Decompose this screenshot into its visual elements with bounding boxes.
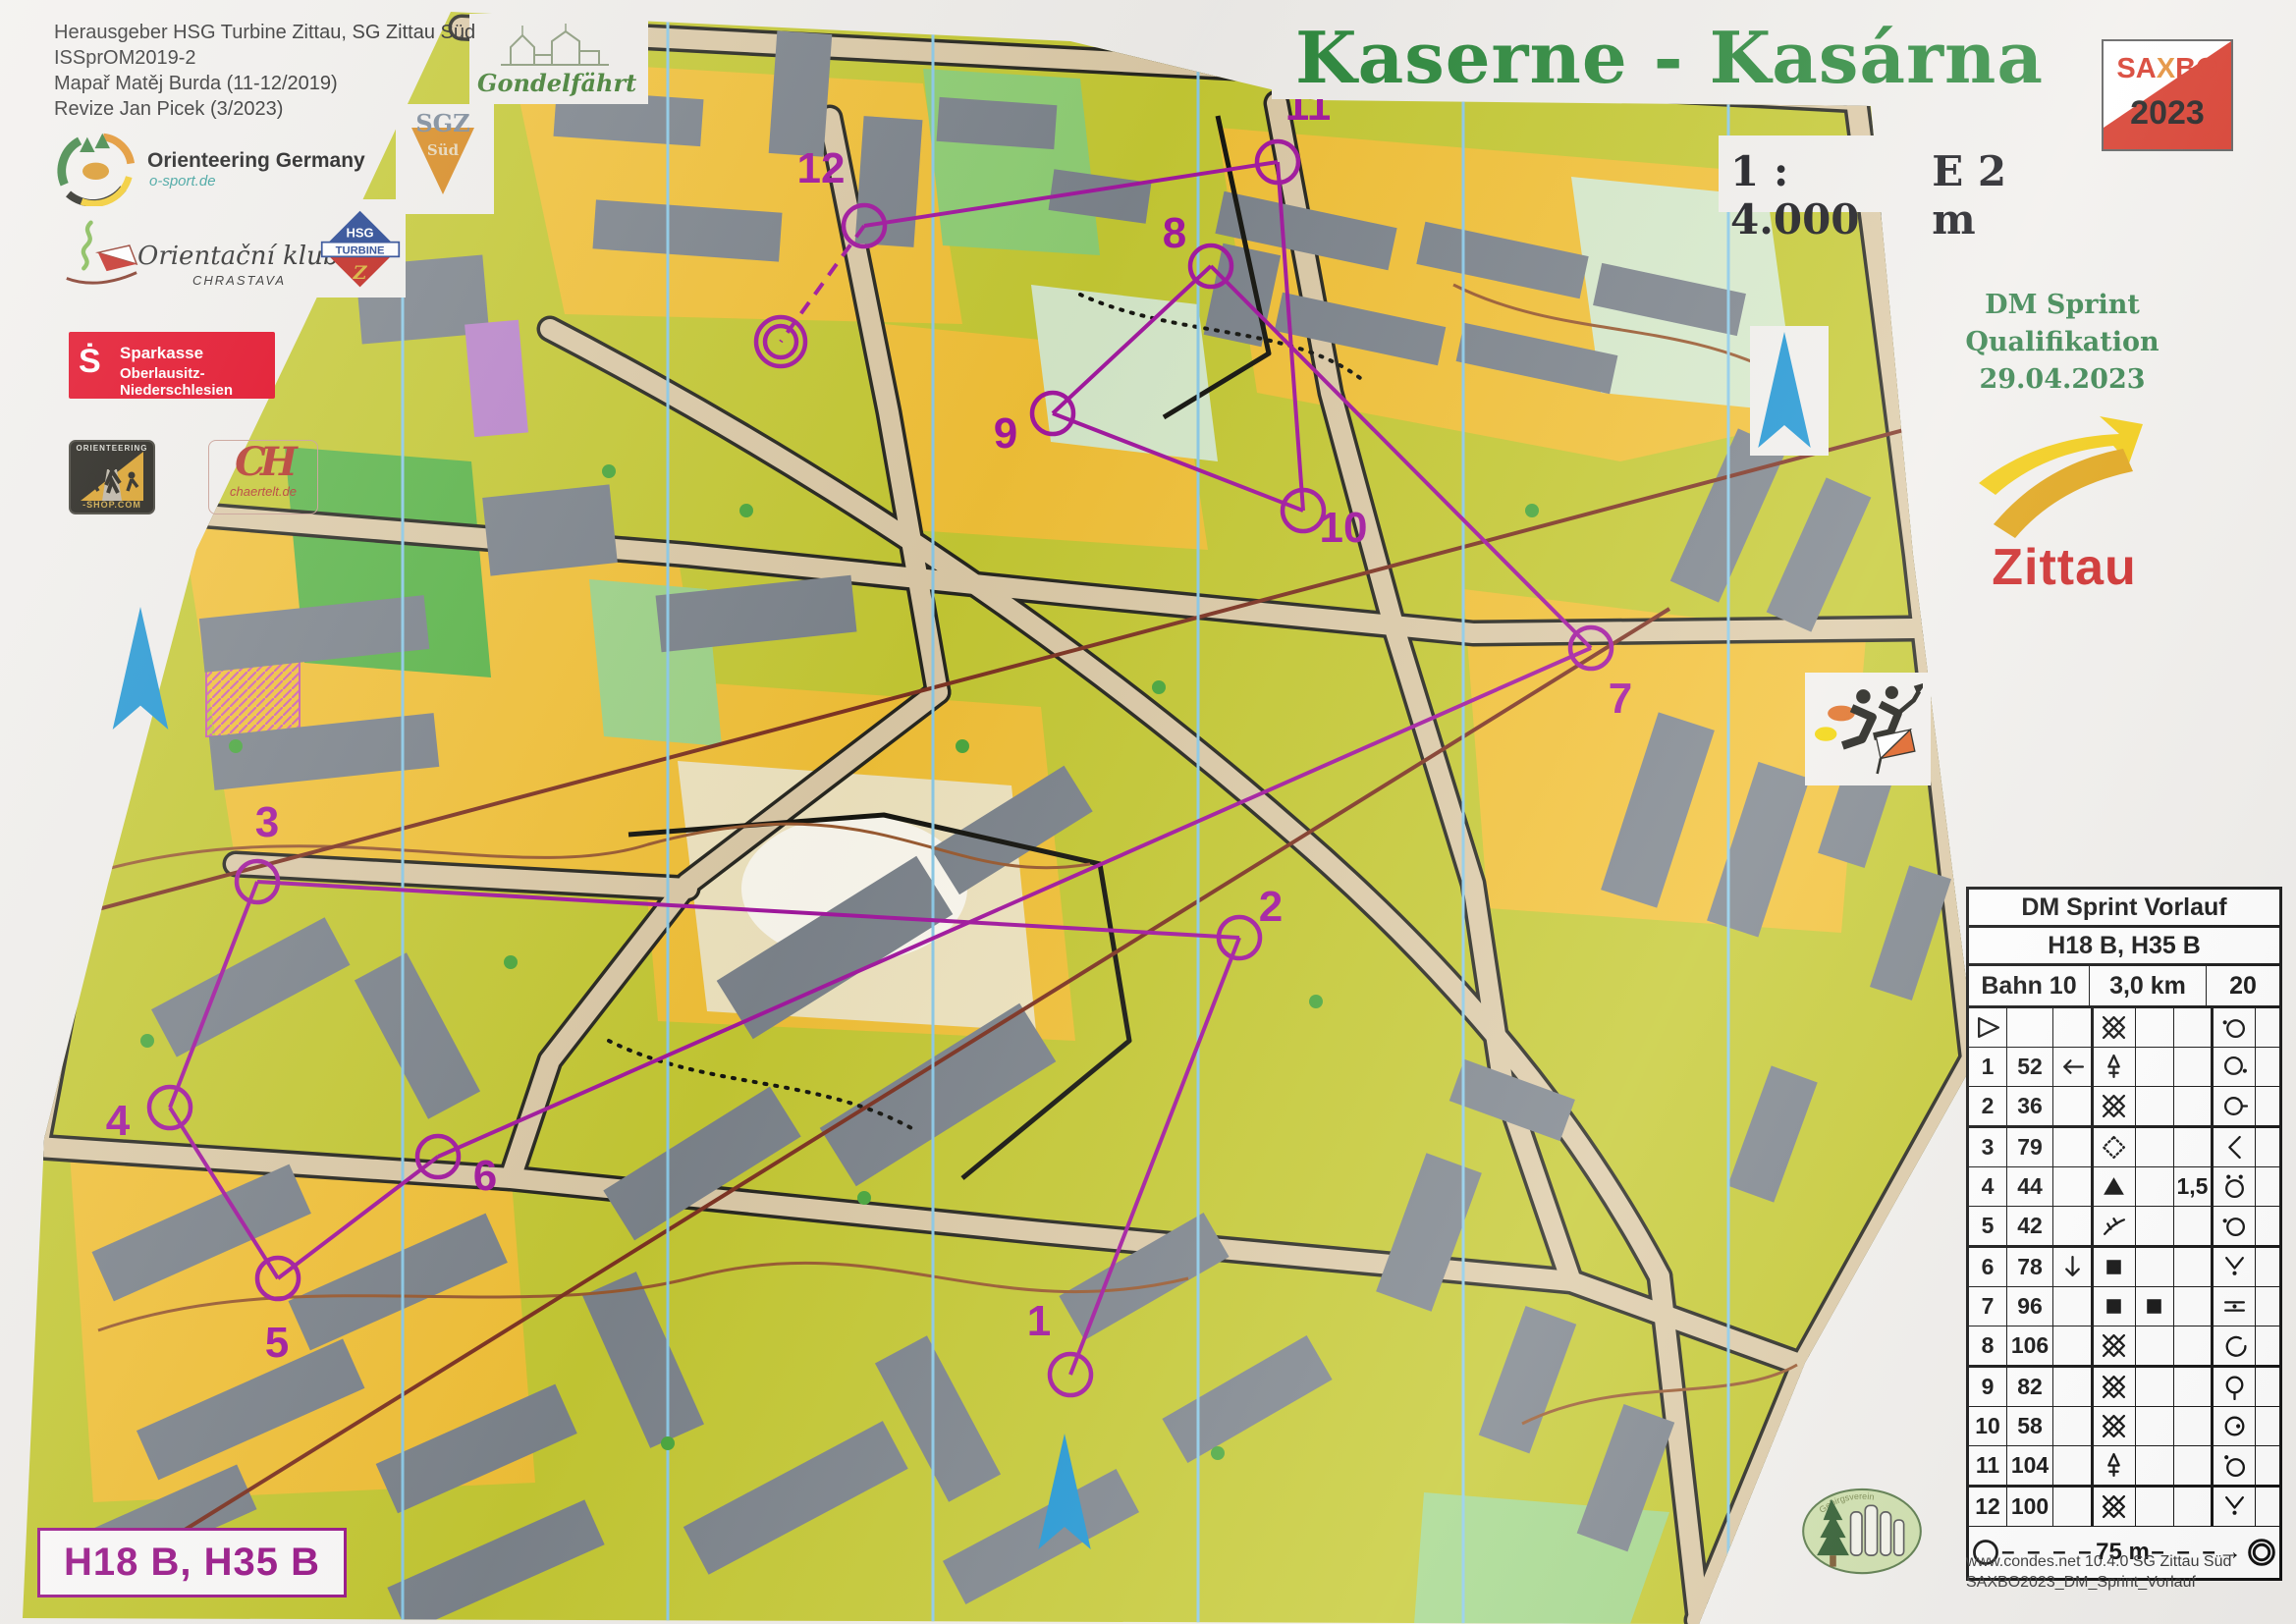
imprint-line: Herausgeber HSG Turbine Zittau, SG Zitta…: [54, 20, 475, 45]
circle-bar-e-icon: .ol{fill:none;stroke:#111;stroke-width:2…: [2221, 1093, 2248, 1119]
zittau-swoosh-icon: [1974, 412, 2151, 540]
orienteering-germany-url: o-sport.de: [149, 173, 216, 189]
cd-cell: .ol{fill:none;stroke:#111;stroke-width:2…: [2091, 1368, 2136, 1406]
cd-course-length: 3,0 km: [2090, 966, 2207, 1005]
cd-cell: .ol{fill:none;stroke:#111;stroke-width:2…: [2211, 1087, 2256, 1125]
cd-cell: [2256, 1287, 2279, 1326]
control-number: 12: [797, 144, 846, 192]
cd-cell: [2136, 1488, 2174, 1526]
cd-cell: .ol{fill:none;stroke:#111;stroke-width:2…: [2136, 1287, 2174, 1326]
cd-rows: .ol{fill:none;stroke:#111;stroke-width:2…: [1969, 1008, 2279, 1527]
cd-cell: 11: [1969, 1446, 2007, 1485]
cd-control-row: 1058.ol{fill:none;stroke:#111;stroke-wid…: [1969, 1407, 2279, 1446]
cd-cell: [2136, 1248, 2174, 1286]
cd-cell: .ol{fill:none;stroke:#111;stroke-width:2…: [2211, 1326, 2256, 1365]
cd-cell: [2136, 1167, 2174, 1206]
cd-cell: [2256, 1368, 2279, 1406]
cd-control-row: 12100.ol{fill:none;stroke:#111;stroke-wi…: [1969, 1488, 2279, 1527]
cd-cell: [2174, 1446, 2213, 1485]
control-number: 3: [255, 798, 279, 846]
gondelfahrt-sketch-icon: [491, 22, 619, 69]
tree-icon: .ol{fill:none;stroke:#111;stroke-width:2…: [2101, 1452, 2127, 1479]
imprint-line: ISSprOM2019-2: [54, 45, 475, 71]
finish-circle-icon: [2246, 1537, 2277, 1568]
cd-course-climb: 20: [2207, 966, 2279, 1005]
cd-course-row: Bahn 10 3,0 km 20: [1969, 966, 2279, 1008]
cd-cell: [2136, 1407, 2174, 1445]
circle-tail-icon: .ol{fill:none;stroke:#111;stroke-width:2…: [2221, 1374, 2248, 1400]
sparkasse-line2: Oberlausitz-Niederschlesien: [120, 365, 275, 399]
cd-cell: .ol{fill:none;stroke:#111;stroke-width:2…: [2211, 1128, 2256, 1166]
scanned-orienteering-map-page: 123456789101112 Herausgeber HSG Turbine …: [0, 0, 2296, 1624]
scale-line: 1 : 4.000 E 2 m: [1730, 147, 2064, 244]
sparkasse-s-icon: Ṡ: [79, 345, 101, 378]
gondelfahrt-label: Gondelfährt: [477, 69, 636, 97]
circle-dot-w-icon: .ol{fill:none;stroke:#111;stroke-width:2…: [2221, 1213, 2248, 1239]
thicket-icon: .ol{fill:none;stroke:#111;stroke-width:2…: [2101, 1374, 2127, 1400]
cd-control-row: 678.ol{fill:none;stroke:#111;stroke-widt…: [1969, 1248, 2279, 1287]
cd-cell: [2053, 1326, 2092, 1365]
map-equidistance: E 2 m: [1932, 147, 2064, 244]
orienteering-shop-bottom-label: -SHOP.COM: [71, 500, 153, 510]
cd-cell: 58: [2007, 1407, 2053, 1445]
cd-cell: 8: [1969, 1326, 2007, 1365]
event-line: DM Sprint: [1954, 287, 2170, 324]
cd-cell: 10: [1969, 1407, 2007, 1445]
cd-cell: [2053, 1446, 2092, 1485]
canopy-building: [465, 320, 528, 437]
cd-cell: .ol{fill:none;stroke:#111;stroke-width:2…: [2211, 1167, 2256, 1206]
event-label: DM Sprint Qualifikation 29.04.2023: [1954, 287, 2170, 399]
cd-cell: [2256, 1128, 2279, 1166]
cd-cell: [2053, 1287, 2092, 1326]
bend-icon: .ol{fill:none;stroke:#111;stroke-width:2…: [2221, 1134, 2248, 1161]
cd-cell: .ol{fill:none;stroke:#111;stroke-width:2…: [2091, 1488, 2136, 1526]
ok-chrastava-sub: CHRASTAVA: [192, 273, 286, 288]
map-scale: 1 : 4.000: [1730, 147, 1932, 244]
saxbo-sa: SA: [2116, 53, 2156, 84]
building-icon: .ol{fill:none;stroke:#111;stroke-width:2…: [2101, 1293, 2127, 1320]
cd-cell: .ol{fill:none;stroke:#111;stroke-width:2…: [2091, 1008, 2136, 1047]
cd-control-row: 379.ol{fill:none;stroke:#111;stroke-widt…: [1969, 1128, 2279, 1167]
chaertelt-logo: CH chaertelt.de: [208, 440, 318, 514]
event-line: Qualifikation: [1954, 324, 2170, 361]
building-icon: .ol{fill:none;stroke:#111;stroke-width:2…: [2141, 1293, 2167, 1320]
control-number: 7: [1609, 675, 1632, 723]
thicket-icon: .ol{fill:none;stroke:#111;stroke-width:2…: [2101, 1093, 2127, 1119]
circle-dot-nw-icon: .ol{fill:none;stroke:#111;stroke-width:2…: [2221, 1452, 2248, 1479]
imprint-line: Mapař Matěj Burda (11-12/2019): [54, 71, 475, 96]
cd-cell: 36: [2007, 1087, 2053, 1125]
hsg-turbine-logo: TURBINE HSG Z: [320, 206, 401, 293]
cd-cell: 106: [2007, 1326, 2053, 1365]
cd-cell: .ol{fill:none;stroke:#111;stroke-width:2…: [2211, 1407, 2256, 1445]
cd-cell: [2256, 1167, 2279, 1206]
cd-cell: .ol{fill:none;stroke:#111;stroke-width:2…: [2091, 1326, 2136, 1365]
cd-cell: .ol{fill:none;stroke:#111;stroke-width:2…: [2211, 1248, 2256, 1286]
cd-cell: [2256, 1446, 2279, 1485]
cd-cell: [2007, 1008, 2053, 1047]
cd-cell: [2174, 1087, 2213, 1125]
cd-control-row: 542.ol{fill:none;stroke:#111;stroke-widt…: [1969, 1207, 2279, 1248]
control-number: 2: [1259, 883, 1283, 931]
event-line: 29.04.2023: [1954, 361, 2170, 399]
credit-line: www.condes.net 10.4.0 SG Zittau Süd: [1966, 1551, 2231, 1572]
zittau-label: Zittau: [1976, 538, 2153, 597]
cd-cell: [2136, 1207, 2174, 1245]
saxbo-word: SAXBO: [2104, 53, 2231, 85]
cd-cell: .ol{fill:none;stroke:#111;stroke-width:2…: [2091, 1128, 2136, 1166]
software-credit: www.condes.net 10.4.0 SG Zittau Süd SAXB…: [1966, 1551, 2231, 1593]
cd-cell: [2256, 1008, 2279, 1047]
sprint-runners-icon: [1813, 676, 1923, 776]
cd-title-row: DM Sprint Vorlauf: [1969, 890, 2279, 928]
north-arrow-icon: [1036, 1434, 1093, 1549]
north-arrow-icon: [110, 607, 171, 730]
thicket-icon: .ol{fill:none;stroke:#111;stroke-width:2…: [2101, 1332, 2127, 1359]
cd-cell: .ol{fill:none;stroke:#111;stroke-width:2…: [2091, 1407, 2136, 1445]
hsg-band-label: TURBINE: [336, 245, 385, 257]
sgz-sued-logo: SGZ Süd: [408, 110, 478, 208]
control-number: 1: [1027, 1297, 1051, 1345]
sparkasse-line1: Sparkasse: [120, 344, 203, 363]
cd-cell: 12: [1969, 1488, 2007, 1526]
cd-cell: .ol{fill:none;stroke:#111;stroke-width:2…: [2211, 1287, 2256, 1326]
cd-cell: .ol{fill:none;stroke:#111;stroke-width:2…: [1969, 1008, 2007, 1047]
boulder-icon: .ol{fill:none;stroke:#111;stroke-width:2…: [2101, 1173, 2127, 1200]
cd-cell: [2053, 1368, 2092, 1406]
arrow-left-icon: .ol{fill:none;stroke:#111;stroke-width:2…: [2059, 1054, 2086, 1080]
cd-cell: 1: [1969, 1048, 2007, 1086]
saxbo-2023-logo: SAXBO 2023: [2102, 39, 2233, 151]
cd-cell: [2053, 1207, 2092, 1245]
credit-line: SAXBO2023_DM_Sprint_Vorlauf: [1966, 1572, 2231, 1593]
cd-cell: [2256, 1326, 2279, 1365]
cd-cell: 4: [1969, 1167, 2007, 1206]
cd-cell: 82: [2007, 1368, 2053, 1406]
cd-cell: .ol{fill:none;stroke:#111;stroke-width:2…: [2211, 1008, 2256, 1047]
cd-cell: [2174, 1488, 2213, 1526]
cd-cell: 100: [2007, 1488, 2053, 1526]
cd-cell: [2136, 1008, 2174, 1047]
cd-cell: 9: [1969, 1368, 2007, 1406]
cd-cell: [2256, 1087, 2279, 1125]
cd-control-row: 8106.ol{fill:none;stroke:#111;stroke-wid…: [1969, 1326, 2279, 1368]
cd-cell: .ol{fill:none;stroke:#111;stroke-width:2…: [2211, 1446, 2256, 1485]
chaertelt-url: chaertelt.de: [209, 484, 317, 499]
sparkasse-logo: Ṡ Sparkasse Oberlausitz-Niederschlesien: [69, 332, 275, 399]
cd-cell: [2053, 1008, 2092, 1047]
cd-cell: 7: [1969, 1287, 2007, 1326]
cd-cell: .ol{fill:none;stroke:#111;stroke-width:2…: [2211, 1048, 2256, 1086]
thicket-icon: .ol{fill:none;stroke:#111;stroke-width:2…: [2101, 1493, 2127, 1520]
thicket-icon: .ol{fill:none;stroke:#111;stroke-width:2…: [2101, 1014, 2127, 1041]
orienteering-germany-label: Orienteering Germany: [147, 149, 365, 173]
cd-cell: .ol{fill:none;stroke:#111;stroke-width:2…: [2091, 1048, 2136, 1086]
cd-cell: 42: [2007, 1207, 2053, 1245]
cd-cell: [2053, 1128, 2092, 1166]
cd-cell: [2256, 1207, 2279, 1245]
cd-cell: [2136, 1326, 2174, 1365]
cd-cell: [2174, 1407, 2213, 1445]
cd-cell: 96: [2007, 1287, 2053, 1326]
orienteering-germany-icon: [51, 126, 141, 206]
cd-cell: .ol{fill:none;stroke:#111;stroke-width:2…: [2053, 1248, 2092, 1286]
control-description-sheet: DM Sprint Vorlauf H18 B, H35 B Bahn 10 3…: [1966, 887, 2282, 1581]
cd-control-row: .ol{fill:none;stroke:#111;stroke-width:2…: [1969, 1008, 2279, 1048]
cd-cell: [2256, 1488, 2279, 1526]
sgz-label: SGZ: [415, 110, 469, 137]
class-label-box: H18 B, H35 B: [37, 1528, 347, 1597]
cd-cell: [2256, 1248, 2279, 1286]
circle-two-dots-icon: .ol{fill:none;stroke:#111;stroke-width:2…: [2221, 1173, 2248, 1200]
cd-cell: 6: [1969, 1248, 2007, 1286]
cd-course-label: Bahn 10: [1969, 966, 2090, 1005]
cd-cell: [2174, 1128, 2213, 1166]
cd-cell: .ol{fill:none;stroke:#111;stroke-width:2…: [2091, 1446, 2136, 1485]
cd-cell: .ol{fill:none;stroke:#111;stroke-width:2…: [2091, 1207, 2136, 1245]
map-title: Kaserne - Kasárna: [1267, 16, 2072, 99]
cd-cell: [2174, 1368, 2213, 1406]
openland-icon: .ol{fill:none;stroke:#111;stroke-width:2…: [2101, 1134, 2127, 1161]
cd-control-row: 11104.ol{fill:none;stroke:#111;stroke-wi…: [1969, 1446, 2279, 1488]
cd-cell: .ol{fill:none;stroke:#111;stroke-width:2…: [2211, 1368, 2256, 1406]
cd-cell: 2: [1969, 1087, 2007, 1125]
control-number: 5: [265, 1319, 289, 1367]
cd-control-row: 152.ol{fill:none;stroke:#111;stroke-widt…: [1969, 1048, 2279, 1087]
cd-cell: [2053, 1407, 2092, 1445]
control-number: 4: [106, 1097, 131, 1145]
gebirgsverein-stamp: Gebirgsverein: [1799, 1485, 1925, 1583]
cd-cell: [2136, 1368, 2174, 1406]
fork-dot-icon: .ol{fill:none;stroke:#111;stroke-width:2…: [2221, 1493, 2248, 1520]
control-number: 9: [994, 409, 1017, 458]
cd-cell: [2174, 1326, 2213, 1365]
fork-dot-icon: .ol{fill:none;stroke:#111;stroke-width:2…: [2221, 1254, 2248, 1280]
arrow-down-icon: .ol{fill:none;stroke:#111;stroke-width:2…: [2059, 1254, 2086, 1280]
building-icon: .ol{fill:none;stroke:#111;stroke-width:2…: [2101, 1254, 2127, 1280]
thicket-icon: .ol{fill:none;stroke:#111;stroke-width:2…: [2101, 1413, 2127, 1439]
cd-control-row: 982.ol{fill:none;stroke:#111;stroke-widt…: [1969, 1368, 2279, 1407]
north-arrow-icon: [1758, 332, 1811, 448]
hsg-z-label: Z: [353, 262, 368, 284]
control-number: 8: [1163, 209, 1186, 257]
cd-control-row: 444.ol{fill:none;stroke:#111;stroke-widt…: [1969, 1167, 2279, 1207]
cd-cell: 79: [2007, 1128, 2053, 1166]
cd-cell: .ol{fill:none;stroke:#111;stroke-width:2…: [2053, 1048, 2092, 1086]
cd-cell: [2174, 1207, 2213, 1245]
class-label: H18 B, H35 B: [64, 1541, 320, 1584]
cd-cell: [2174, 1008, 2213, 1047]
cd-classes: H18 B, H35 B: [2048, 932, 2201, 960]
cd-cell: [2174, 1287, 2213, 1326]
cd-cell: 78: [2007, 1248, 2053, 1286]
cd-cell: 1,5: [2174, 1167, 2213, 1206]
cd-cell: [2174, 1048, 2213, 1086]
map-imprint: Herausgeber HSG Turbine Zittau, SG Zitta…: [54, 20, 475, 122]
between-icon: .ol{fill:none;stroke:#111;stroke-width:2…: [2221, 1293, 2248, 1320]
chaertelt-monogram: CH: [209, 441, 317, 484]
cd-control-row: 236.ol{fill:none;stroke:#111;stroke-widt…: [1969, 1087, 2279, 1128]
ok-chrastava-icon: [61, 218, 139, 289]
saxbo-bo: BO: [2175, 53, 2218, 84]
control-number: 6: [473, 1152, 497, 1200]
orienteering-shop-top-label: ORIENTEERING: [71, 444, 153, 453]
cd-cell: [2136, 1128, 2174, 1166]
cd-cell: [2136, 1048, 2174, 1086]
cd-cell: 44: [2007, 1167, 2053, 1206]
cd-cell: 52: [2007, 1048, 2053, 1086]
cd-cell: 5: [1969, 1207, 2007, 1245]
orienteering-shop-logo: ORIENTEERING -SHOP.COM: [69, 440, 155, 514]
tree-icon: .ol{fill:none;stroke:#111;stroke-width:2…: [2101, 1054, 2127, 1080]
cd-cell: [2256, 1048, 2279, 1086]
cd-cell: .ol{fill:none;stroke:#111;stroke-width:2…: [2091, 1287, 2136, 1326]
cd-cell: [2136, 1087, 2174, 1125]
saxbo-year: 2023: [2104, 94, 2231, 133]
saxbo-x: X: [2157, 53, 2175, 84]
cd-control-row: 796.ol{fill:none;stroke:#111;stroke-widt…: [1969, 1287, 2279, 1326]
fence-icon: .ol{fill:none;stroke:#111;stroke-width:2…: [2101, 1213, 2127, 1239]
cd-cell: [2174, 1248, 2213, 1286]
cd-cell: [2053, 1167, 2092, 1206]
cd-class-row: H18 B, H35 B: [1969, 928, 2279, 966]
cd-cell: [2053, 1488, 2092, 1526]
hsg-top-label: HSG: [347, 225, 374, 240]
circle-dot-e-icon: .ol{fill:none;stroke:#111;stroke-width:2…: [2221, 1054, 2248, 1080]
sgz-sub-label: Süd: [427, 141, 460, 159]
start-icon: .ol{fill:none;stroke:#111;stroke-width:2…: [1975, 1014, 2001, 1041]
cd-cell: .ol{fill:none;stroke:#111;stroke-width:2…: [2211, 1207, 2256, 1245]
cd-cell: [2053, 1087, 2092, 1125]
cd-cell: .ol{fill:none;stroke:#111;stroke-width:2…: [2091, 1248, 2136, 1286]
circle-dot-w-icon: .ol{fill:none;stroke:#111;stroke-width:2…: [2221, 1014, 2248, 1041]
cd-cell: .ol{fill:none;stroke:#111;stroke-width:2…: [2091, 1167, 2136, 1206]
circle-gap-icon: .ol{fill:none;stroke:#111;stroke-width:2…: [2221, 1332, 2248, 1359]
cd-cell: 3: [1969, 1128, 2007, 1166]
control-number: 10: [1320, 504, 1368, 552]
cd-cell: [2136, 1446, 2174, 1485]
cd-cell: .ol{fill:none;stroke:#111;stroke-width:2…: [2091, 1087, 2136, 1125]
cd-cell: .ol{fill:none;stroke:#111;stroke-width:2…: [2211, 1488, 2256, 1526]
cd-cell: [2256, 1407, 2279, 1445]
ok-chrastava-label: Orientační klub: [137, 242, 340, 271]
cd-cell: 104: [2007, 1446, 2053, 1485]
circle-dot-in-icon: .ol{fill:none;stroke:#111;stroke-width:2…: [2221, 1413, 2248, 1439]
cd-title: DM Sprint Vorlauf: [2021, 893, 2226, 922]
